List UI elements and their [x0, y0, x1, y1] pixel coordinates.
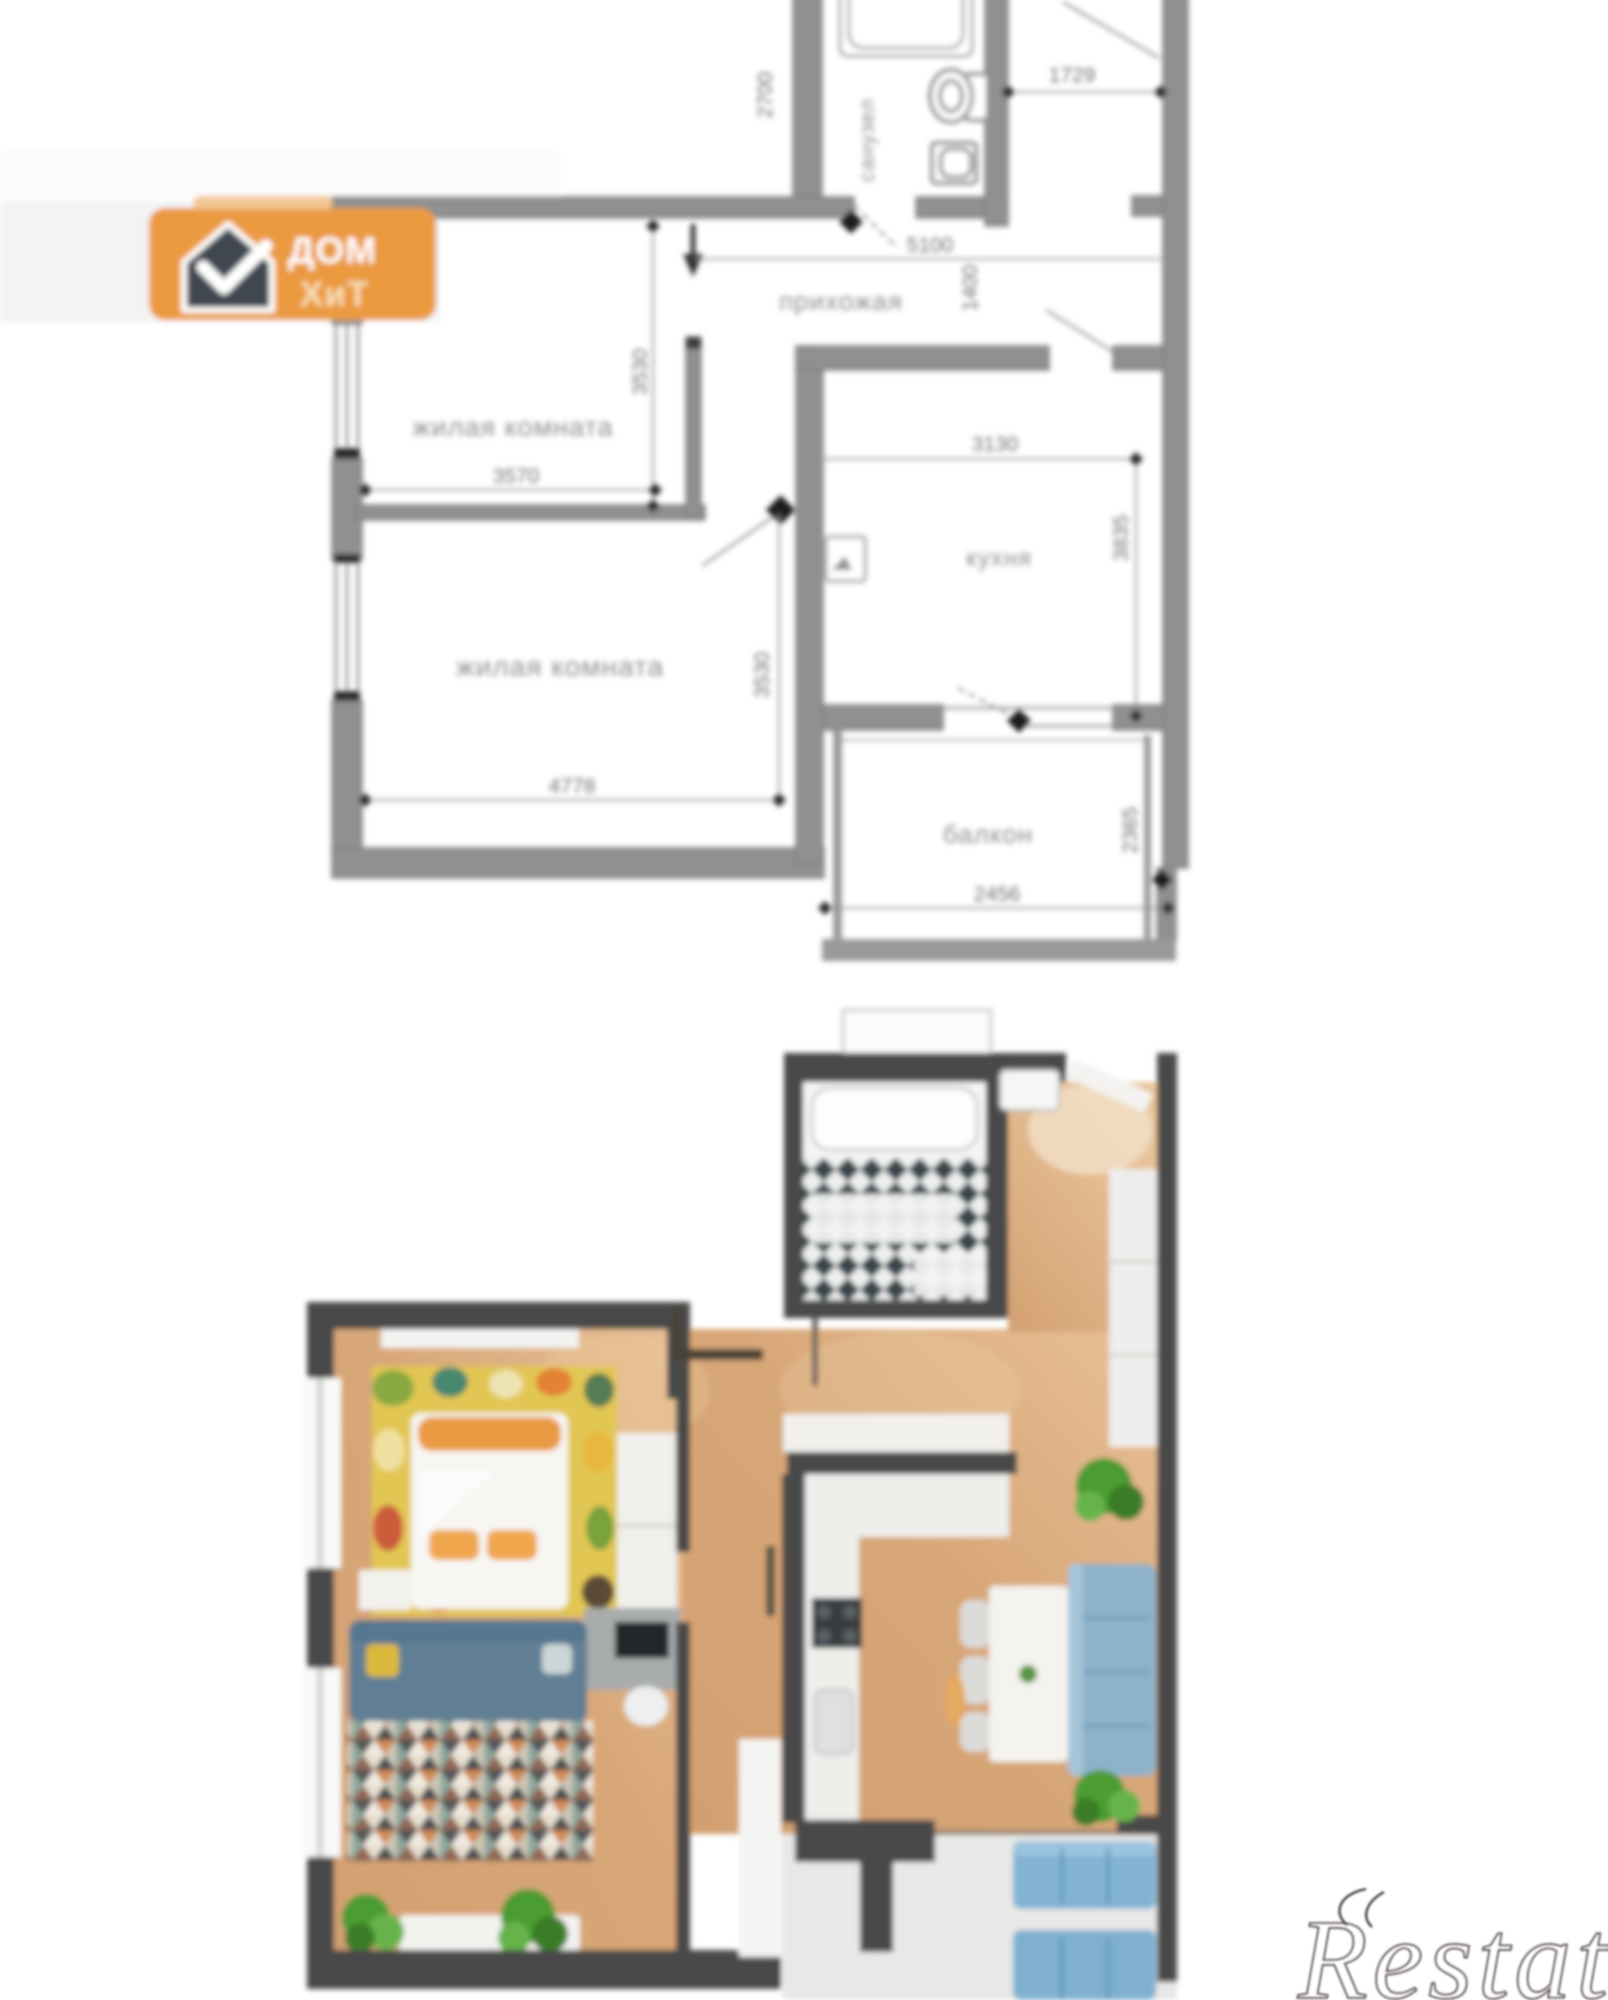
svg-text:ХиТ: ХиТ: [300, 275, 369, 314]
svg-text:5100: 5100: [907, 234, 954, 257]
svg-text:2456: 2456: [974, 883, 1021, 906]
svg-text:Restate: Restate: [1297, 1896, 1608, 2000]
svg-text:жилая комната: жилая комната: [456, 651, 664, 682]
svg-text:ДОМ: ДОМ: [288, 230, 377, 271]
svg-text:3530: 3530: [751, 652, 774, 699]
svg-text:3570: 3570: [493, 465, 540, 488]
svg-text:жилая комната: жилая комната: [412, 412, 613, 442]
svg-text:санузел: санузел: [856, 98, 879, 182]
svg-text:3835: 3835: [1110, 515, 1133, 562]
svg-text:балкон: балкон: [943, 819, 1033, 849]
svg-text:кухня: кухня: [966, 545, 1032, 572]
svg-text:4778: 4778: [549, 775, 596, 798]
svg-text:1400: 1400: [959, 265, 982, 312]
svg-text:2365: 2365: [1119, 807, 1142, 854]
svg-text:3130: 3130: [972, 433, 1019, 456]
svg-text:прихожая: прихожая: [779, 286, 903, 316]
svg-text:1729: 1729: [1049, 64, 1096, 87]
svg-text:2700: 2700: [754, 72, 777, 119]
svg-text:3530: 3530: [629, 349, 652, 396]
